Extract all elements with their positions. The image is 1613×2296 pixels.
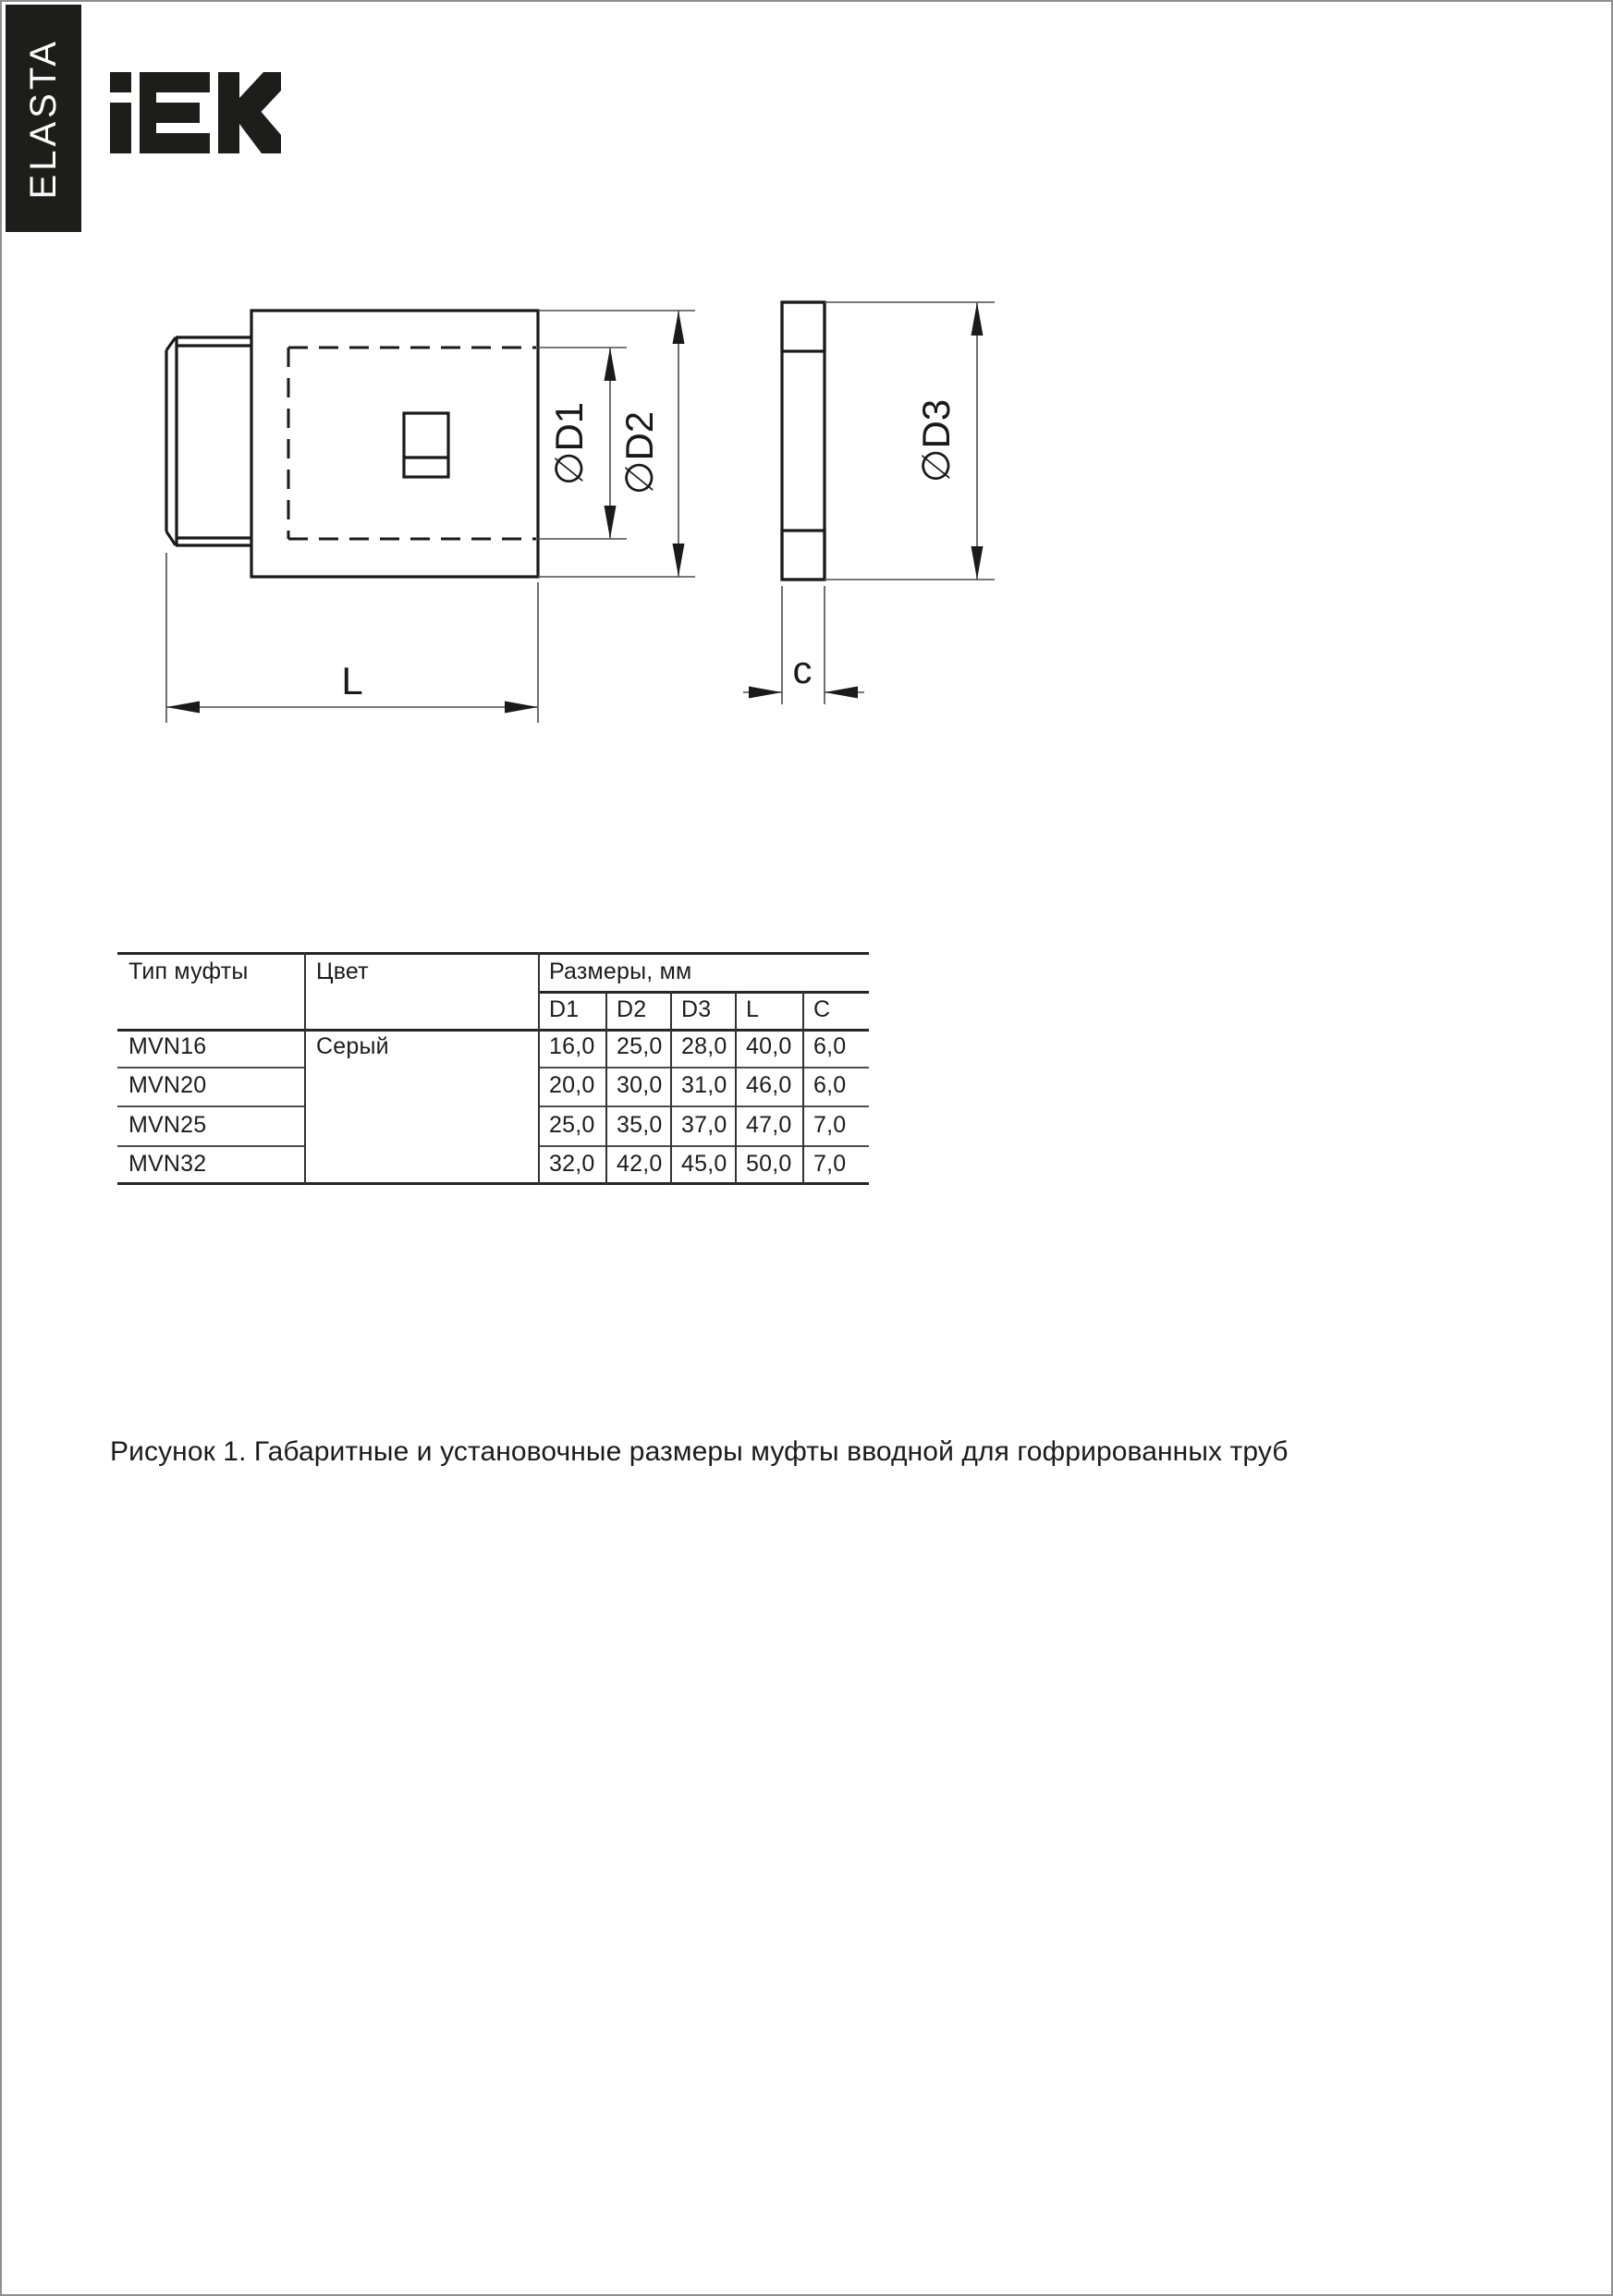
thread-nipple <box>166 337 251 545</box>
table-rule <box>538 1145 869 1147</box>
datasheet-page: ELASTA <box>0 0 1613 2296</box>
table-cell: 31,0 <box>681 1074 727 1097</box>
table-cell: 25,0 <box>549 1114 594 1137</box>
table-cell: 7,0 <box>813 1153 846 1176</box>
table-cell-color: Серый <box>316 1035 389 1058</box>
dimension-label-l: L <box>341 659 362 702</box>
table-subheader-d1: D1 <box>549 998 579 1021</box>
table-rule <box>605 991 607 1185</box>
table-cell: 7,0 <box>813 1114 846 1137</box>
dimension-label-d2: ∅D2 <box>617 411 661 495</box>
table-cell: 30,0 <box>617 1074 662 1097</box>
table-cell: 37,0 <box>681 1114 727 1137</box>
ring-section-bottom-hatch <box>782 531 825 580</box>
table-rule <box>117 1029 869 1032</box>
dimension-d3: ∅D3 <box>914 302 984 580</box>
table-rule <box>670 991 672 1185</box>
table-rule <box>117 1145 304 1147</box>
figure-caption: Рисунок 1. Габаритные и установочные раз… <box>110 1436 1289 1468</box>
table-subheader-d3: D3 <box>681 998 711 1021</box>
dimension-d1: ∅D1 <box>547 348 617 539</box>
iek-letter-e <box>140 72 210 153</box>
table-subheader-d2: D2 <box>617 998 646 1021</box>
iek-logo <box>110 72 281 153</box>
table-cell: 47,0 <box>746 1114 791 1137</box>
table-cell: 6,0 <box>813 1074 846 1097</box>
ring-outline <box>782 302 825 580</box>
table-cell-type: MVN20 <box>128 1074 206 1097</box>
table-rule <box>304 952 306 1185</box>
table-rule <box>538 991 869 994</box>
iek-i-dot <box>110 72 131 92</box>
brand-sidebar: ELASTA <box>6 5 81 232</box>
dimension-label-d3: ∅D3 <box>914 399 958 482</box>
table-subheader-c: C <box>813 998 830 1021</box>
table-cell: 46,0 <box>746 1074 791 1097</box>
table-header-sizes: Размеры, мм <box>549 960 691 983</box>
table-cell: 16,0 <box>549 1035 594 1058</box>
table-rule <box>117 1067 304 1069</box>
table-cell-type: MVN25 <box>128 1114 206 1137</box>
side-view: ∅D1 ∅D2 L <box>166 311 695 723</box>
brand-sidebar-label: ELASTA <box>23 38 65 199</box>
table-cell: 28,0 <box>681 1035 727 1058</box>
table-rule <box>117 1105 304 1107</box>
dimension-l: L <box>166 659 538 714</box>
table-rule <box>538 1067 869 1069</box>
table-cell: 45,0 <box>681 1153 727 1176</box>
table-rule <box>117 952 869 955</box>
dimension-label-c: c <box>793 648 813 691</box>
table-rule <box>802 991 804 1185</box>
table-cell: 35,0 <box>617 1114 662 1137</box>
iek-letter-i <box>110 72 131 153</box>
iek-letter-k <box>218 72 281 153</box>
table-cell-type: MVN32 <box>128 1153 206 1176</box>
table-cell: 6,0 <box>813 1035 846 1058</box>
table-rule <box>538 1105 869 1107</box>
table-rule <box>117 1182 869 1185</box>
dimension-c: c <box>743 648 864 699</box>
end-view: ∅D3 c <box>743 302 995 704</box>
ring-section-top-hatch <box>782 302 825 351</box>
table-cell: 50,0 <box>746 1153 791 1176</box>
table-cell: 40,0 <box>746 1035 791 1058</box>
table-rule <box>538 952 540 1185</box>
extension-lines-end <box>782 302 995 704</box>
technical-drawing: ∅D1 ∅D2 L <box>94 279 1065 760</box>
table-subheader-l: L <box>746 998 759 1021</box>
table-rule <box>735 991 737 1185</box>
table-cell-type: MVN16 <box>128 1035 206 1058</box>
dimension-label-d1: ∅D1 <box>547 402 591 485</box>
dimension-d2: ∅D2 <box>617 311 685 577</box>
table-cell: 42,0 <box>617 1153 662 1176</box>
table-cell: 25,0 <box>617 1035 662 1058</box>
table-cell: 32,0 <box>549 1153 594 1176</box>
table-header-type: Тип муфты <box>128 960 249 983</box>
body-outline <box>251 311 538 577</box>
table-cell: 20,0 <box>549 1074 594 1097</box>
table-header-color: Цвет <box>316 960 369 983</box>
iek-i-stem <box>110 103 131 153</box>
